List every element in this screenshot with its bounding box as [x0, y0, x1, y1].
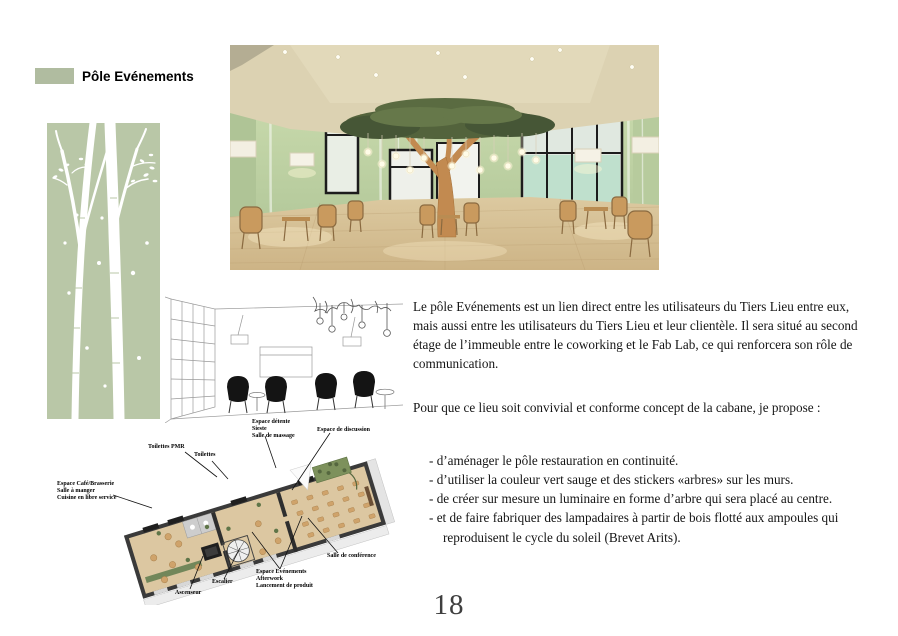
proposal-item: - de créer sur mesure un luminaire en fo…	[429, 489, 865, 508]
label-espace-cafe: Espace Café/Brasserie Salle à manger Cui…	[57, 481, 116, 502]
floor-plan-axonometric	[70, 435, 410, 605]
paragraph-proposal: Pour que ce lieu soit convivial et confo…	[413, 398, 865, 417]
label-toilettes: Toilettes	[194, 452, 215, 459]
paragraph-intro: Le pôle Evénements est un lien direct en…	[413, 297, 865, 374]
legend-swatch	[35, 68, 74, 84]
proposal-item: - d’aménager le pôle restauration en con…	[429, 451, 865, 470]
document-page: Pôle Evénements	[0, 0, 898, 636]
page-number: 18	[0, 589, 898, 622]
page-title: Pôle Evénements	[82, 69, 194, 84]
birch-sticker-graphic	[47, 123, 160, 419]
proposal-list: - d’aménager le pôle restauration en con…	[429, 451, 865, 547]
floor-plan-graphic	[70, 435, 410, 605]
label-espace-evenements: Espace Evénements Afterwork Lancement de…	[256, 569, 313, 590]
section-header: Pôle Evénements	[35, 68, 194, 84]
label-espace-discussion: Espace de discussion	[317, 427, 370, 434]
render-graphic	[230, 45, 659, 270]
label-escalier: Escalier	[212, 579, 233, 586]
proposal-item: - et de faire fabriquer des lampadaires …	[429, 508, 865, 546]
label-salle-conference: Salle de conférence	[327, 553, 376, 560]
sketch-graphic	[165, 295, 405, 423]
sticker-panel-arbres	[47, 123, 160, 419]
sketch-espace-detente	[165, 295, 405, 423]
proposal-item: - d’utiliser la couleur vert sauge et de…	[429, 470, 865, 489]
label-espace-detente: Espace détente Sieste Salle de massage	[252, 419, 295, 440]
render-pole-evenements	[230, 45, 659, 270]
label-toilettes-pmr: Toilettes PMR	[148, 444, 185, 451]
